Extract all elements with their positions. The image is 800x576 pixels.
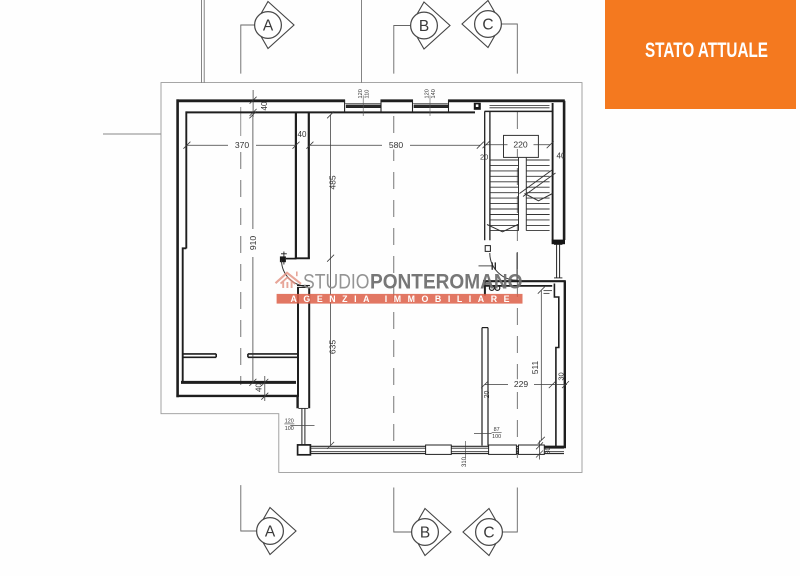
svg-text:140: 140 (431, 89, 437, 98)
svg-text:120: 120 (425, 89, 431, 98)
svg-text:635: 635 (328, 340, 338, 355)
svg-text:30: 30 (545, 447, 552, 455)
svg-text:100: 100 (285, 426, 294, 432)
svg-text:B: B (420, 525, 430, 542)
svg-text:580: 580 (389, 140, 404, 150)
svg-text:30: 30 (557, 372, 566, 380)
svg-text:40: 40 (557, 152, 566, 161)
svg-text:A: A (265, 524, 276, 541)
svg-text:STATO ATTUALE: STATO ATTUALE (645, 39, 768, 62)
svg-text:20: 20 (484, 391, 491, 399)
svg-text:229: 229 (514, 379, 529, 389)
svg-text:40: 40 (260, 101, 269, 110)
svg-text:40: 40 (255, 383, 264, 392)
svg-text:100: 100 (492, 434, 501, 440)
svg-text:40: 40 (298, 130, 307, 139)
svg-text:310: 310 (462, 456, 468, 467)
svg-text:B: B (419, 18, 429, 35)
svg-text:910: 910 (248, 236, 258, 251)
svg-text:C: C (482, 17, 493, 34)
svg-text:A: A (263, 18, 274, 35)
svg-text:110: 110 (364, 90, 370, 99)
svg-text:20: 20 (480, 153, 488, 162)
svg-text:220: 220 (513, 140, 528, 150)
svg-text:370: 370 (235, 140, 250, 150)
svg-text:485: 485 (328, 175, 338, 190)
svg-text:PONTEROMANO: PONTEROMANO (370, 268, 523, 293)
svg-text:STUDIO: STUDIO (303, 268, 370, 293)
svg-text:511: 511 (530, 360, 540, 374)
svg-text:120: 120 (358, 89, 364, 98)
svg-text:C: C (483, 525, 494, 542)
